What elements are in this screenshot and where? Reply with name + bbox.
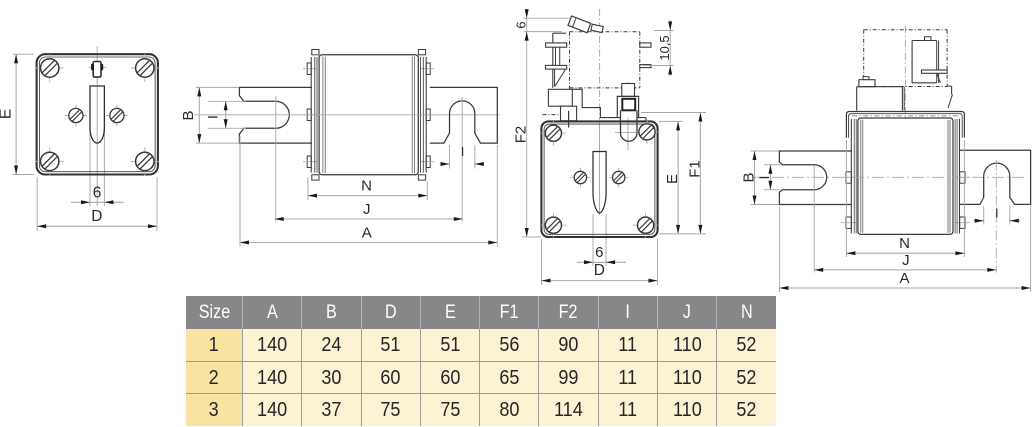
svg-text:A: A [899,270,909,287]
svg-text:6: 6 [595,244,603,261]
svg-text:F1: F1 [687,160,704,178]
svg-text:F2: F2 [513,126,530,144]
svg-text:I: I [995,205,999,220]
svg-text:B: B [180,110,197,120]
svg-text:I: I [461,144,465,159]
svg-text:E: E [664,174,681,184]
svg-text:6: 6 [514,21,529,28]
svg-text:I: I [756,176,772,180]
svg-text:E: E [0,109,15,119]
svg-text:A: A [362,224,372,241]
svg-text:D: D [91,208,102,225]
svg-text:J: J [363,201,371,218]
svg-text:B: B [740,172,757,182]
svg-text:10,5: 10,5 [657,35,672,60]
svg-text:6: 6 [93,184,102,201]
svg-text:N: N [899,235,910,252]
svg-text:I: I [204,115,220,119]
svg-text:D: D [594,262,605,279]
svg-text:N: N [361,178,372,195]
svg-text:J: J [902,252,910,269]
